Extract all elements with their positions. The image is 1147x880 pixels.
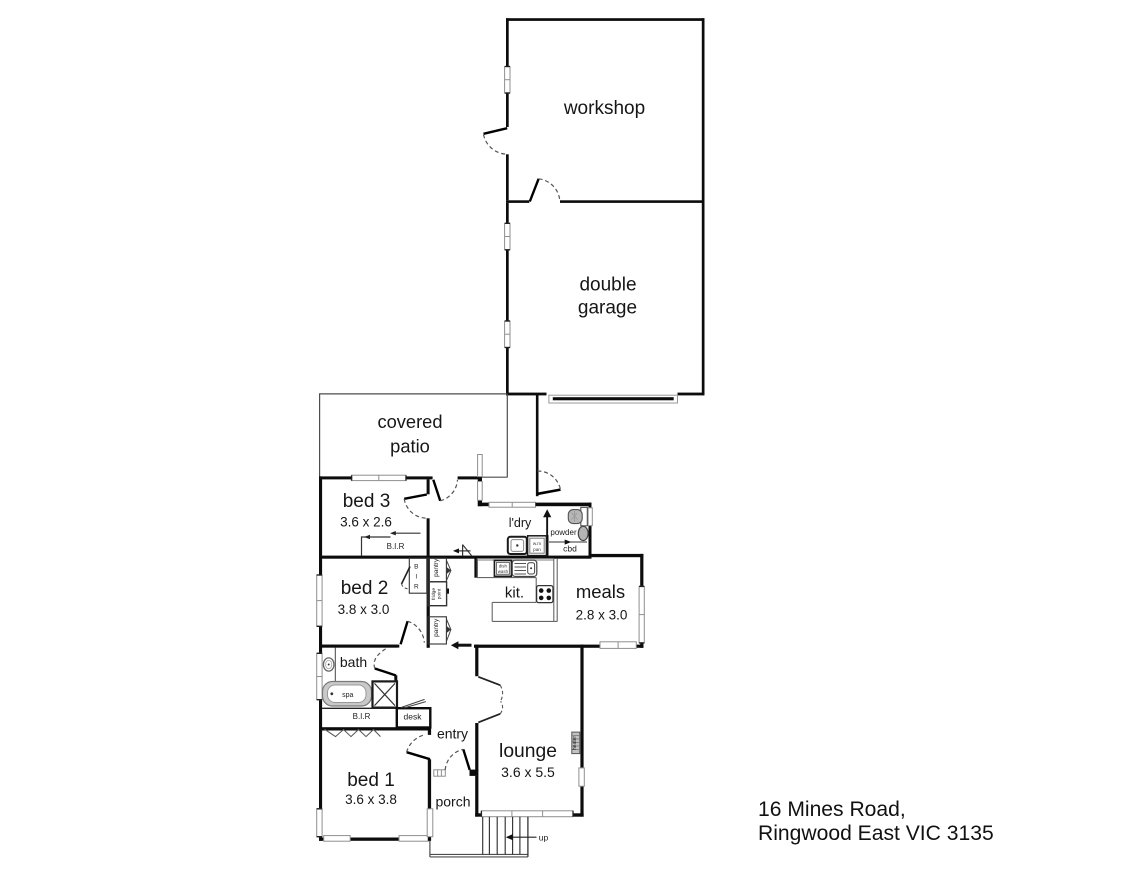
svg-text:entry: entry [437, 726, 468, 742]
svg-text:spa: spa [342, 692, 353, 699]
svg-text:pan: pan [533, 547, 541, 552]
svg-text:powder: powder [550, 528, 577, 537]
svg-text:B.I.R: B.I.R [387, 542, 405, 551]
svg-text:bath: bath [340, 654, 367, 670]
svg-text:bed 3: bed 3 [343, 491, 391, 512]
svg-text:porch: porch [435, 794, 470, 810]
svg-text:cbd: cbd [563, 544, 577, 554]
svg-text:covered: covered [377, 411, 442, 432]
svg-text:patio: patio [390, 436, 430, 457]
svg-text:garage: garage [578, 297, 637, 318]
svg-text:point: point [437, 588, 443, 599]
svg-text:2.8 x 3.0: 2.8 x 3.0 [576, 608, 628, 623]
svg-text:double: double [579, 274, 636, 295]
svg-text:I: I [415, 574, 417, 581]
svg-text:3.6 x 5.5: 3.6 x 5.5 [501, 764, 555, 780]
svg-text:lounge: lounge [499, 741, 557, 762]
svg-text:bed 1: bed 1 [347, 770, 395, 791]
svg-text:heater: heater [572, 736, 578, 751]
svg-text:pantry: pantry [433, 618, 440, 637]
svg-text:w.m: w.m [533, 541, 541, 546]
svg-text:desk: desk [404, 712, 423, 722]
svg-text:bed 2: bed 2 [341, 578, 389, 599]
svg-text:up: up [539, 833, 549, 843]
svg-text:wash: wash [498, 569, 509, 574]
svg-text:B.I.R: B.I.R [353, 712, 371, 721]
svg-text:3.6 x 3.8: 3.6 x 3.8 [345, 792, 397, 807]
svg-text:3.6 x 2.6: 3.6 x 2.6 [340, 515, 392, 530]
svg-text:pantry: pantry [433, 558, 440, 577]
svg-text:fridge: fridge [431, 588, 437, 600]
svg-text:R: R [414, 584, 419, 591]
svg-text:16 Mines Road,: 16 Mines Road, [758, 798, 906, 821]
svg-text:Ringwood East VIC 3135: Ringwood East VIC 3135 [758, 822, 994, 845]
svg-text:l'dry: l'dry [509, 516, 532, 530]
svg-text:dish: dish [499, 564, 508, 569]
svg-text:B: B [414, 564, 418, 571]
svg-text:workshop: workshop [563, 98, 645, 119]
svg-text:3.8 x 3.0: 3.8 x 3.0 [338, 602, 390, 617]
svg-text:kit.: kit. [505, 585, 524, 602]
svg-text:meals: meals [576, 581, 625, 602]
